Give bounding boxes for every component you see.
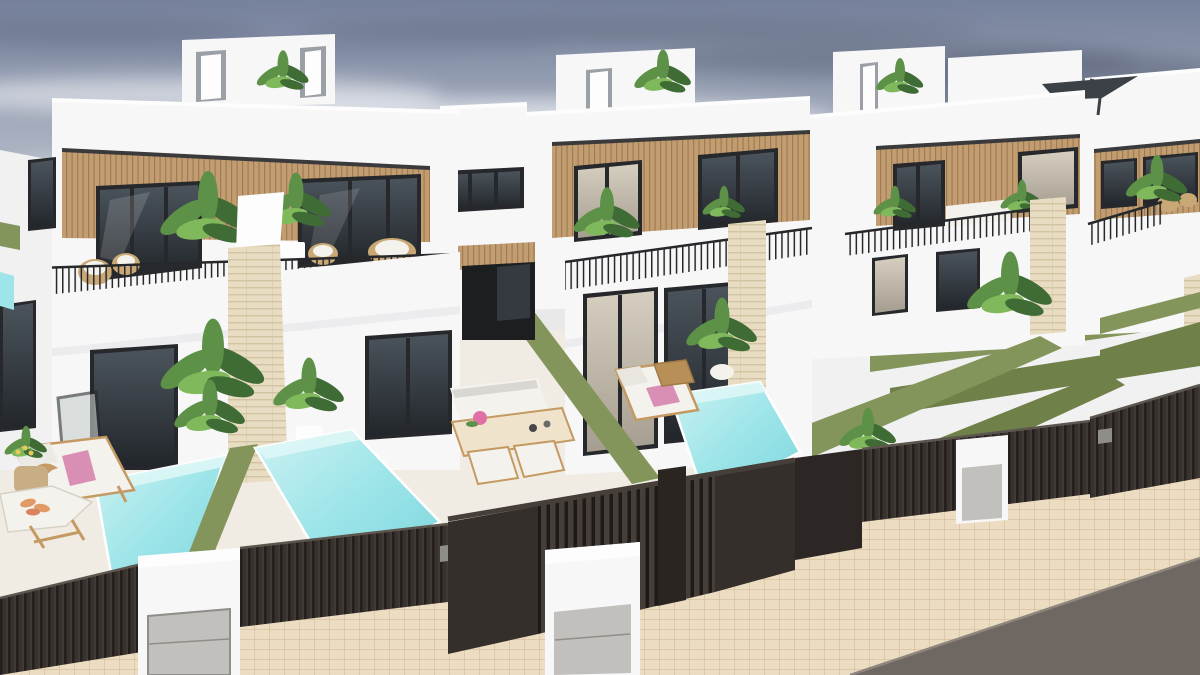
white-planter	[277, 242, 305, 260]
croissant	[26, 509, 40, 516]
plant-pot	[710, 364, 734, 380]
window	[893, 160, 945, 231]
pool-glimpse	[0, 272, 14, 310]
roof-access-door	[586, 68, 612, 112]
roof-access-door	[196, 50, 226, 102]
dining-chair	[514, 441, 564, 477]
render-canvas	[0, 0, 1200, 675]
side-table	[654, 360, 694, 386]
gate-post	[658, 466, 686, 606]
dining-chair	[468, 447, 518, 484]
far-right-villa	[1085, 68, 1200, 370]
left-neighbour-house	[0, 150, 56, 470]
yellow-flower	[23, 446, 28, 451]
roof-access-door	[860, 62, 878, 116]
ground-window	[872, 254, 908, 316]
entrance-pillar	[138, 548, 240, 675]
window	[28, 157, 56, 231]
entrance-pillar	[545, 542, 640, 675]
letterbox-panel	[962, 464, 1002, 521]
gate-plaque	[1098, 428, 1112, 444]
grass-glimpse	[0, 222, 20, 250]
pillar-cap	[236, 192, 284, 252]
ground-window	[365, 330, 452, 440]
corridor-glass-door	[497, 264, 530, 321]
entrance-pillar	[956, 435, 1008, 524]
window	[0, 300, 36, 432]
architectural-render	[0, 0, 1200, 675]
roof-access-door	[300, 46, 326, 98]
yellow-flower	[29, 451, 34, 456]
yellow-flower	[16, 450, 21, 455]
street-fence-corner	[795, 449, 862, 560]
window	[1101, 158, 1137, 209]
roof-terrace-box	[182, 34, 335, 108]
wicker-chair	[1179, 193, 1197, 207]
